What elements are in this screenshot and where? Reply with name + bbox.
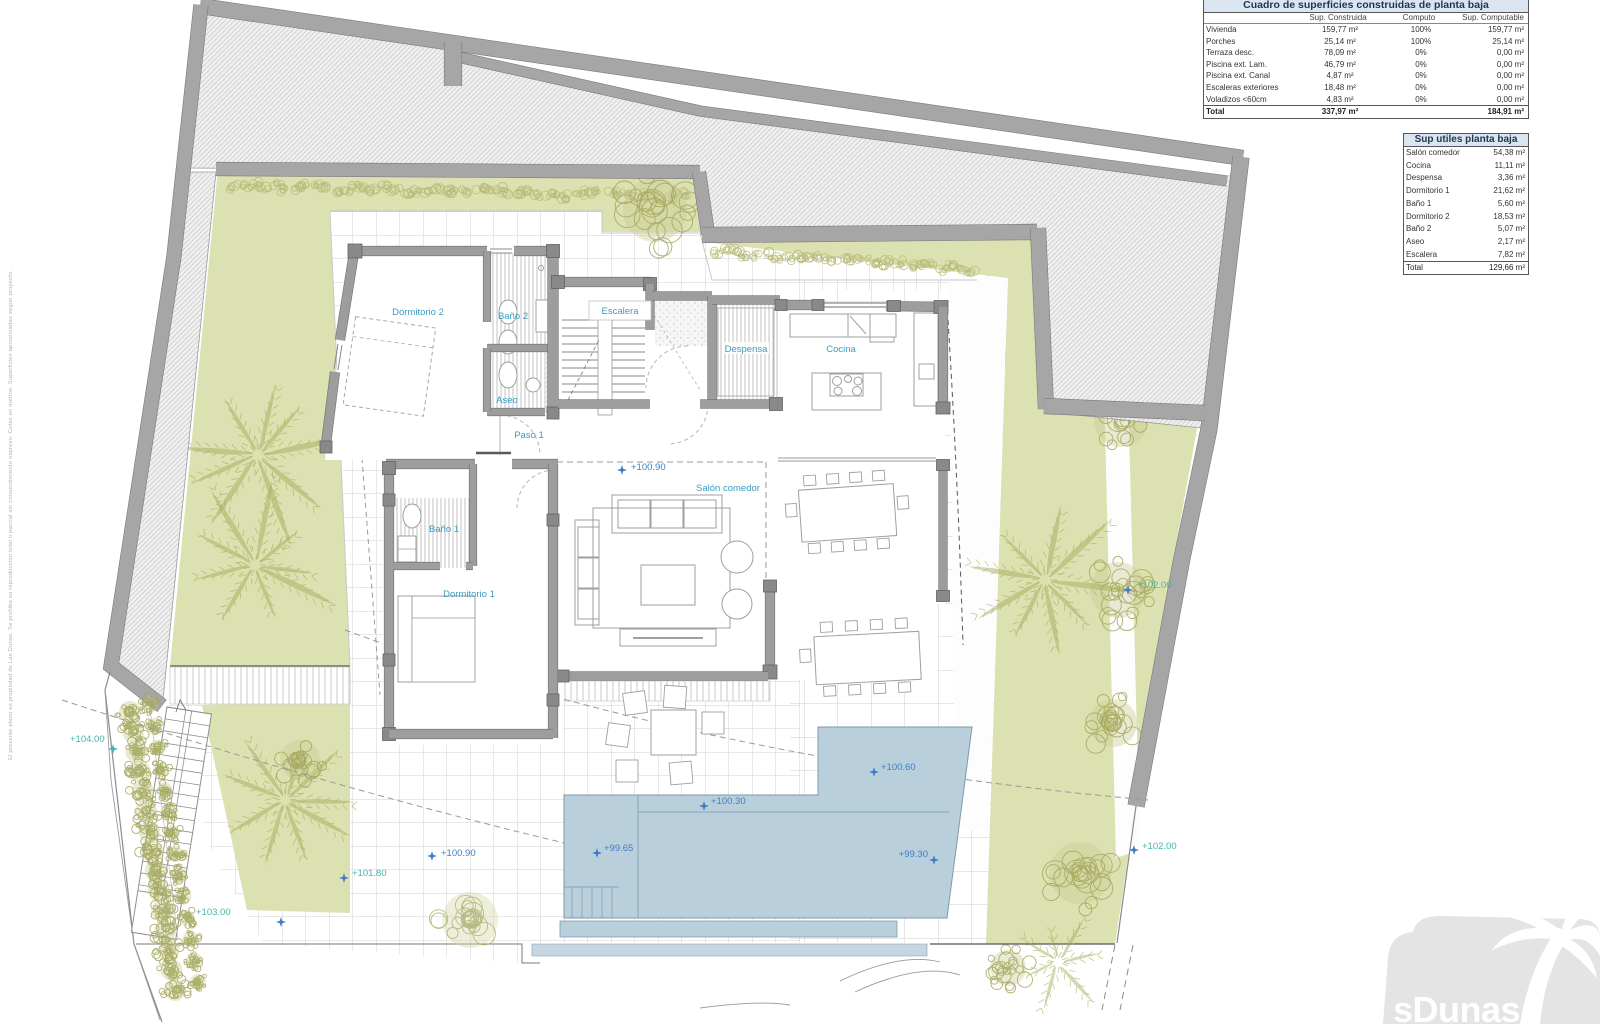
svg-text:+100.90: +100.90 [441,848,476,859]
svg-text:+100.60: +100.60 [881,762,916,773]
svg-text:Baño 2: Baño 2 [498,311,528,322]
svg-text:El presente plano es propiedad: El presente plano es propiedad de Las Du… [8,270,14,760]
svg-text:+104.00: +104.00 [70,734,105,745]
svg-text:+101.80: +101.80 [352,868,387,879]
svg-text:Baño 1: Baño 1 [429,524,459,535]
svg-text:Dormitorio 1: Dormitorio 1 [443,589,495,600]
svg-text:+99.65: +99.65 [604,843,633,854]
svg-text:+99.30: +99.30 [899,849,928,860]
svg-text:+102.00: +102.00 [1142,841,1177,852]
svg-text:+100.90: +100.90 [631,462,666,473]
svg-text:sDunas: sDunas [1393,989,1520,1024]
svg-text:Paso 1: Paso 1 [514,430,544,441]
svg-text:Despensa: Despensa [725,344,768,355]
svg-text:Aseo: Aseo [496,395,518,406]
svg-text:+103.00: +103.00 [196,907,231,918]
svg-text:Cocina: Cocina [826,344,856,355]
svg-text:Escalera: Escalera [602,306,640,317]
svg-text:+100.30: +100.30 [711,796,746,807]
svg-text:Dormitorio 2: Dormitorio 2 [392,307,444,318]
svg-text:Salón comedor: Salón comedor [696,483,760,494]
svg-text:+102.00: +102.00 [1137,580,1172,591]
